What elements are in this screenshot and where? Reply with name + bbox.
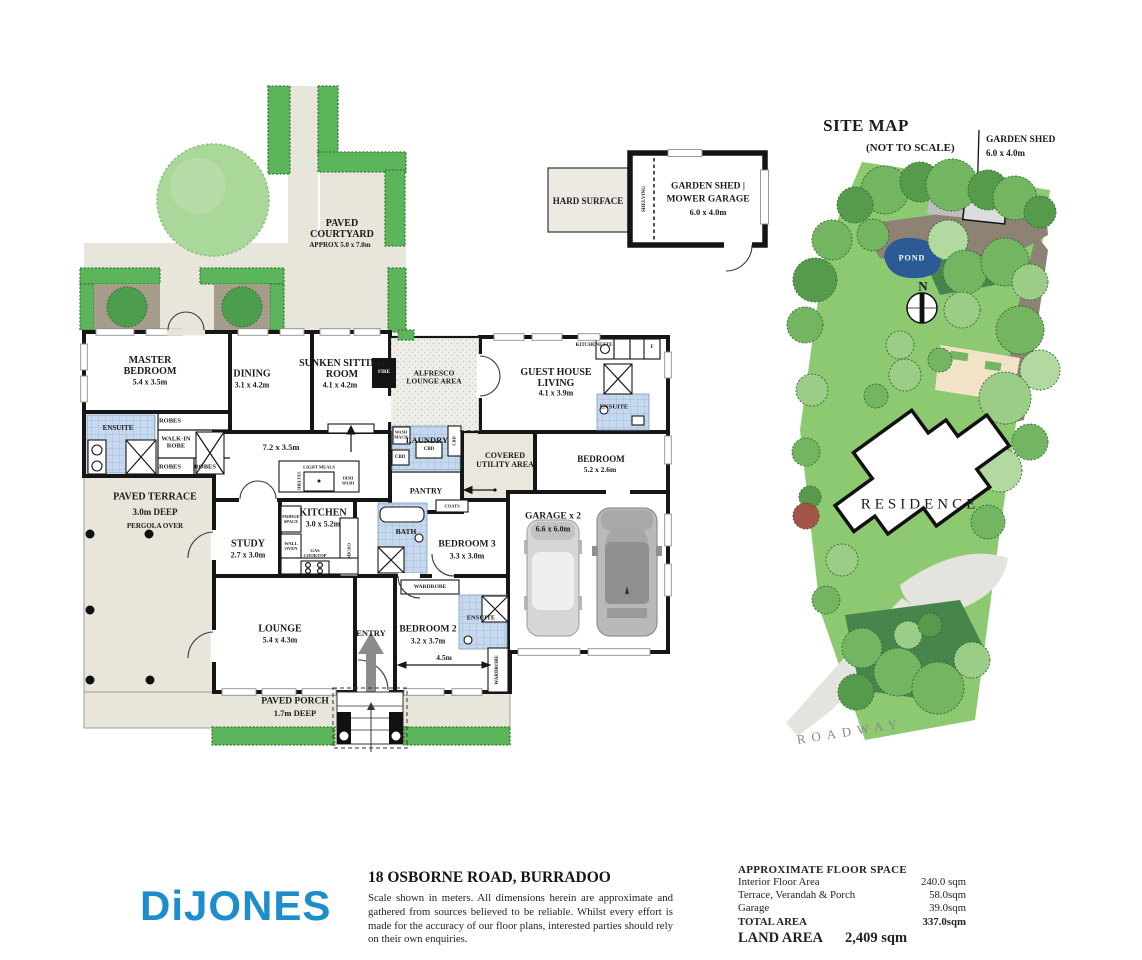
gas-cooktop-label: GAS COOKTOP [299,548,331,558]
sitemap-shed-label: GARDEN SHED [986,136,1055,146]
bedroom2-width-dim: 4.5m [436,654,452,662]
shed-title: GARDEN SHED | [671,182,745,193]
north-label: N [918,280,927,295]
light-meals-label: LIGHT MEALS [303,464,335,469]
coats-label: COATS [444,503,459,508]
row-label: Interior Floor Area [738,876,820,889]
fridge-label: F [650,345,653,351]
wardrobe-label: WARDROBE [414,584,446,590]
room-dining-dims: 3.1 x 4.2m [235,382,270,391]
room-master-dims: 5.4 x 3.5m [133,379,168,388]
walk-in-robe-label: WALK-IN ROBE [157,436,195,451]
area-terrace: PAVED TERRACE [113,491,197,502]
room-study-dims: 2.7 x 3.0m [231,552,266,561]
fridge-space-label: FRIDGE SPACE [281,514,301,524]
porch-deep: 1.7m DEEP [274,709,317,719]
shed-dims: 6.0 x 4.0m [690,208,727,218]
residence-label: RESIDENCE [861,497,980,514]
shelving-label: SHELVING [642,186,648,212]
cbd-label: CBD [395,455,406,461]
room-guest-bedroom-dims: 5.2 x 2.6m [584,466,617,474]
bed-tree-icon [107,287,147,327]
micro-label: MICRO [346,543,351,559]
wardrobe-label: WARDROBE [495,655,501,684]
room-entry: ENTRY [356,629,385,639]
room-bedroom3: BEDROOM 3 [438,540,495,551]
table-row: Garage 39.0sqm [738,902,966,915]
room-master: MASTER BEDROOM [111,355,189,377]
row-value: 39.0sqm [929,902,966,915]
site-map-subtitle: (NOT TO SCALE) [866,143,955,155]
table-row: Terrace, Verandah & Porch 58.0sqm [738,889,966,902]
room-study: STUDY [231,538,265,549]
courtyard-approx: APPROX 5.0 x 7.0m [309,242,370,250]
room-guest-living-dims: 4.1 x 3.9m [539,390,574,399]
disclaimer-text: Scale shown in meters. All dimensions he… [368,892,673,947]
courtyard-area [80,86,406,333]
room-lounge-dims: 5.4 x 4.3m [263,637,298,646]
ensuite-label: ENSUITE [103,425,134,433]
robes-label: ROBES [159,417,181,424]
hard-surface-label: HARD SURFACE [553,196,624,206]
row-label: Garage [738,902,769,915]
fire-label: FIRE [378,370,390,376]
land-label: LAND AREA [738,930,823,947]
cbd-label: CBD [451,436,456,446]
plan-drawing [0,0,1142,960]
wall-oven-label: WALL OVEN [282,541,300,551]
robes-label: ROBES [194,463,216,470]
table-row-total: TOTAL AREA 337.0sqm [738,916,966,929]
room-bedroom2-dims: 3.2 x 3.7m [411,638,446,647]
car-icon [524,520,582,636]
cbd-label: CBD [424,447,435,453]
area-pantry: PANTRY [410,488,442,497]
area-laundry: LAUNDRY [406,436,448,446]
room-kitchen: KITCHEN [299,507,346,518]
room-garage-dims: 6.6 x 6.0m [536,526,571,535]
kitchenette-label: KITCHENETTE [576,343,613,349]
room-guest-living: GUEST HOUSE LIVING [514,367,598,389]
courtyard-label: PAVED COURTYARD [305,218,379,240]
room-bedroom2: BEDROOM 2 [399,625,456,636]
room-guest-bedroom: BEDROOM [577,454,625,464]
room-dining: DINING [233,368,270,379]
room-sitting: SUNKEN SITTING ROOM [296,358,388,380]
room-garage: GARAGE x 2 [525,512,581,523]
red-tree-icon [793,503,819,529]
total-value: 337.0sqm [923,916,967,929]
shed-title-line2: MOWER GARAGE [666,195,749,206]
dish-wash-label: DISH WASH [339,476,357,485]
area-porch: PAVED PORCH [261,697,328,708]
floor-space-table: APPROXIMATE FLOOR SPACE Interior Floor A… [738,864,966,947]
site-map-drawing [786,130,1060,740]
dijones-logo: DiJONES [140,882,331,930]
property-address: 18 OSBORNE ROAD, BURRADOO [368,869,611,887]
room-kitchen-dims: 3.0 x 5.2m [306,521,341,530]
robes-label: ROBES [159,463,181,470]
ensuite-label: ENSUITE [467,614,496,621]
shed-plan-drawing [548,150,769,272]
open-area-dims: 7.2 x 3.5m [263,443,300,453]
table-row-land: LAND AREA 2,409 sqm [738,930,966,947]
wash-mach-label: WASH MACH [393,430,409,439]
bed-tree-icon [222,287,262,327]
land-value: 2,409 sqm [845,930,907,947]
table-row: Interior Floor Area 240.0 sqm [738,876,966,889]
shelves-label: SHELVES [298,472,303,491]
row-value: 58.0sqm [929,889,966,902]
bath-label: BATH [396,528,417,536]
room-bedroom3-dims: 3.3 x 3.0m [450,553,485,562]
room-sitting-dims: 4.1 x 4.2m [323,382,358,391]
total-label: TOTAL AREA [738,916,807,929]
room-alfresco: ALFRESCO LOUNGE AREA [401,370,467,387]
ensuite-label: ENSUITE [600,403,629,410]
floorplan-page: PAVED COURTYARD APPROX 5.0 x 7.0m MASTER… [0,0,1142,960]
terrace-pergola: PERGOLA OVER [127,523,183,531]
site-map-title: SITE MAP [823,117,909,135]
area-utility: COVERED UTILITY AREA [472,452,538,470]
entry-steps [333,688,407,752]
sitemap-shed-dims: 6.0 x 4.0m [986,149,1025,158]
room-lounge: LOUNGE [258,623,301,634]
terrace-deep: 3.0m DEEP [133,507,178,517]
floor-space-title: APPROXIMATE FLOOR SPACE [738,864,966,876]
row-label: Terrace, Verandah & Porch [738,889,855,902]
pond-label: POND [899,255,926,264]
compass-icon [907,293,937,323]
row-value: 240.0 sqm [921,876,966,889]
